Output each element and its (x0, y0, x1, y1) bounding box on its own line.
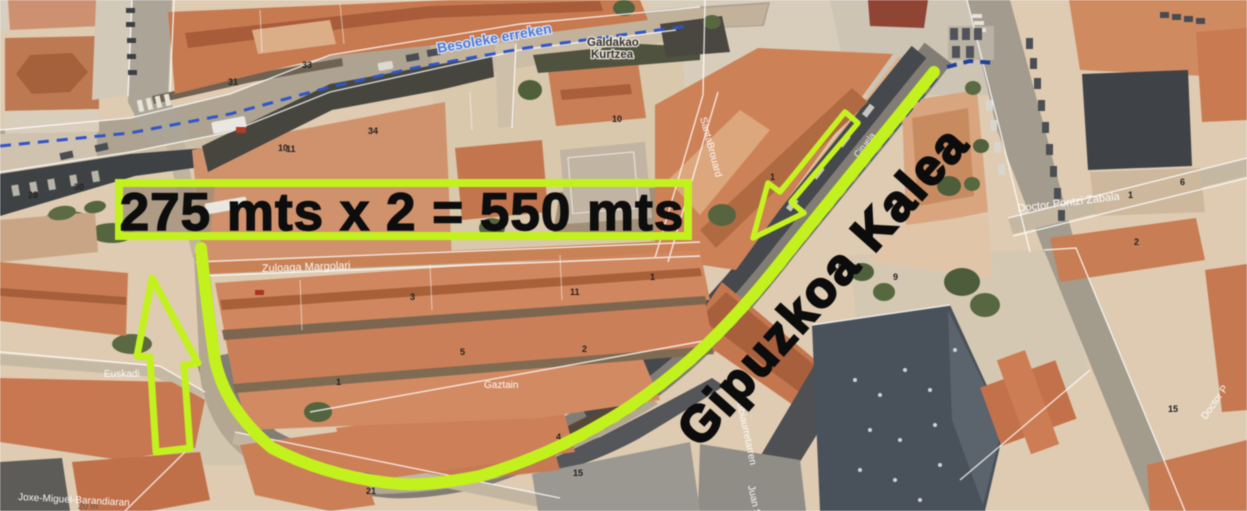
svg-text:21: 21 (366, 486, 376, 496)
svg-text:9: 9 (893, 272, 898, 282)
svg-text:15: 15 (1168, 404, 1178, 414)
svg-text:2: 2 (1134, 237, 1139, 247)
svg-text:28: 28 (28, 190, 38, 200)
svg-text:1: 1 (336, 377, 341, 387)
svg-text:Galdakao: Galdakao (587, 37, 639, 49)
svg-text:34: 34 (368, 126, 378, 136)
svg-text:6: 6 (1180, 177, 1185, 187)
svg-text:5: 5 (460, 347, 465, 357)
svg-text:33: 33 (302, 60, 312, 70)
svg-text:31: 31 (228, 77, 238, 87)
svg-text:Euskadi: Euskadi (104, 369, 140, 380)
svg-text:1: 1 (650, 272, 655, 282)
svg-text:30: 30 (74, 182, 84, 192)
svg-text:Kurtzea: Kurtzea (591, 49, 634, 61)
svg-text:275 mts x 2 = 550 mts: 275 mts x 2 = 550 mts (120, 183, 685, 242)
svg-text:1: 1 (1128, 190, 1133, 200)
svg-text:11: 11 (570, 287, 580, 297)
svg-text:10: 10 (612, 114, 622, 124)
svg-text:2: 2 (582, 344, 587, 354)
svg-text:3: 3 (410, 292, 415, 302)
svg-text:10: 10 (278, 143, 288, 153)
svg-text:15: 15 (573, 468, 583, 478)
svg-text:Gaztain: Gaztain (484, 380, 518, 391)
svg-text:1: 1 (770, 172, 775, 182)
